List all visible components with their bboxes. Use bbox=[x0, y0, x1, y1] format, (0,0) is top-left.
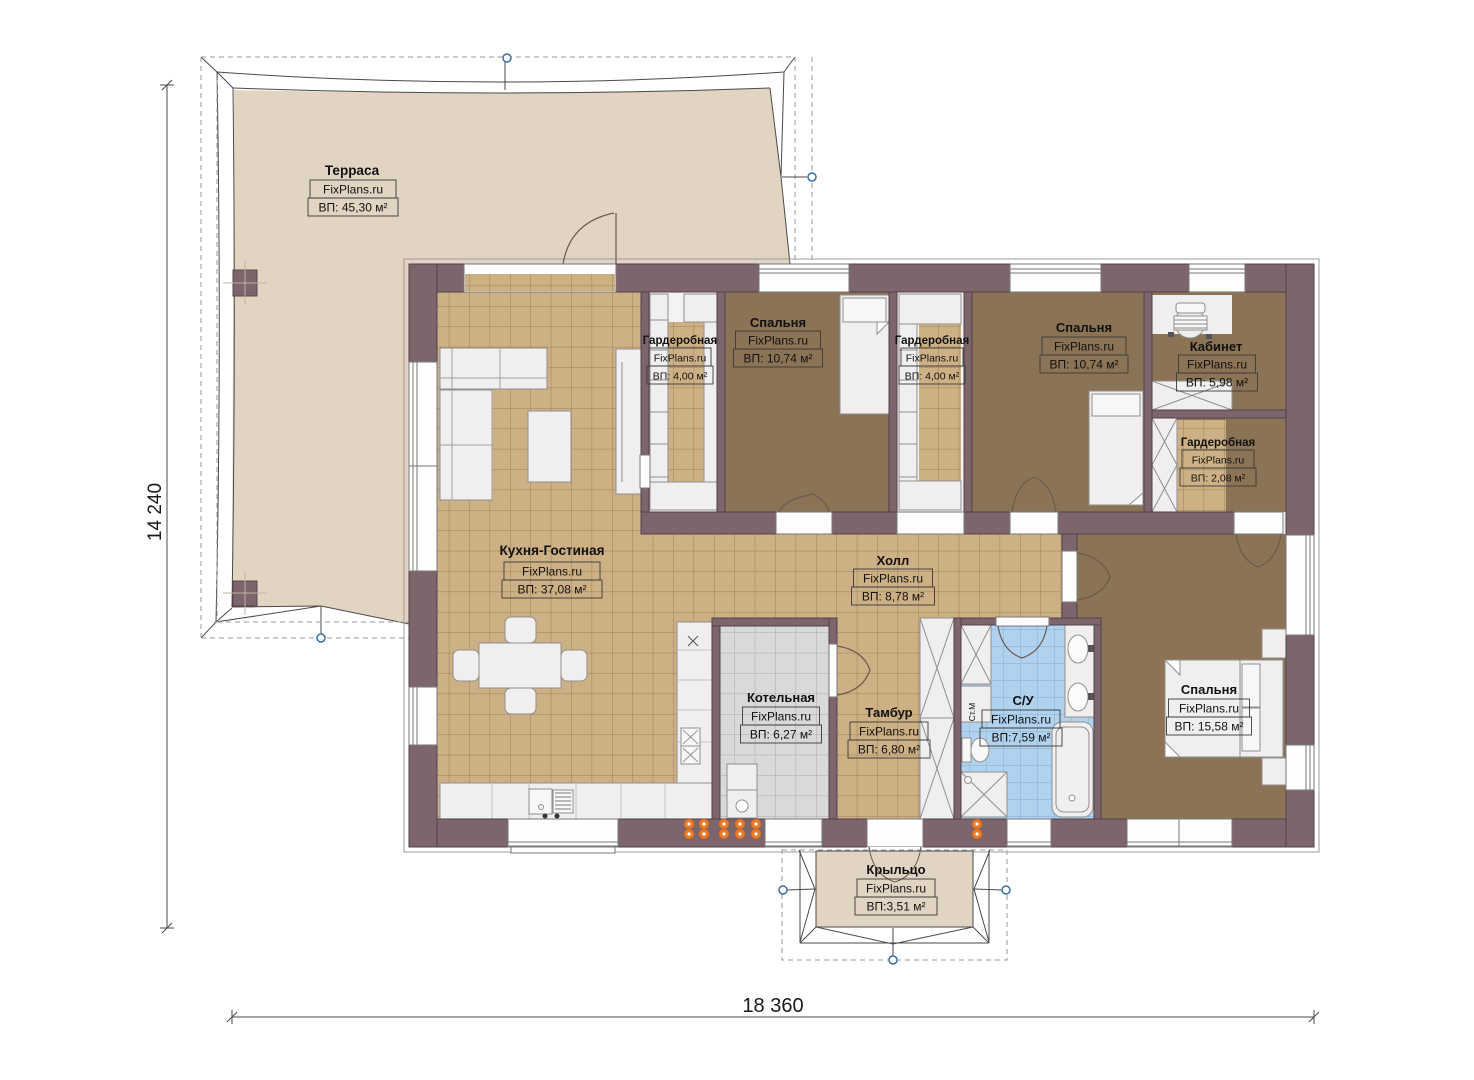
svg-text:ВП: 37,08 м²: ВП: 37,08 м² bbox=[518, 583, 587, 597]
svg-text:FixPlans.ru: FixPlans.ru bbox=[906, 353, 959, 365]
svg-text:Тамбур: Тамбур bbox=[865, 705, 912, 720]
svg-text:FixPlans.ru: FixPlans.ru bbox=[859, 725, 919, 739]
svg-text:ВП: 8,78 м²: ВП: 8,78 м² bbox=[862, 590, 924, 604]
svg-text:Кабинет: Кабинет bbox=[1190, 339, 1243, 354]
svg-text:ВП: 6,27 м²: ВП: 6,27 м² bbox=[750, 728, 812, 742]
svg-text:FixPlans.ru: FixPlans.ru bbox=[751, 710, 811, 724]
svg-text:FixPlans.ru: FixPlans.ru bbox=[1187, 358, 1247, 372]
svg-text:ВП: 4,00 м²: ВП: 4,00 м² bbox=[653, 371, 708, 383]
svg-text:Спальня: Спальня bbox=[1181, 682, 1237, 697]
svg-text:FixPlans.ru: FixPlans.ru bbox=[1192, 455, 1245, 467]
svg-text:FixPlans.ru: FixPlans.ru bbox=[991, 713, 1051, 727]
svg-text:Терраса: Терраса bbox=[325, 163, 380, 178]
svg-text:ВП:7,59 м²: ВП:7,59 м² bbox=[992, 731, 1051, 745]
svg-text:Холл: Холл bbox=[877, 553, 910, 568]
svg-text:С/У: С/У bbox=[1012, 693, 1034, 708]
svg-text:18 360: 18 360 bbox=[742, 995, 803, 1017]
svg-text:ВП: 15,58 м²: ВП: 15,58 м² bbox=[1175, 720, 1244, 734]
svg-text:FixPlans.ru: FixPlans.ru bbox=[1179, 702, 1239, 716]
svg-text:FixPlans.ru: FixPlans.ru bbox=[863, 572, 923, 586]
svg-text:FixPlans.ru: FixPlans.ru bbox=[866, 882, 926, 896]
svg-text:FixPlans.ru: FixPlans.ru bbox=[748, 334, 808, 348]
svg-text:Гардеробная: Гардеробная bbox=[643, 335, 717, 347]
svg-text:ВП:3,51 м²: ВП:3,51 м² bbox=[867, 900, 926, 914]
svg-text:Гардеробная: Гардеробная bbox=[1181, 437, 1255, 449]
svg-text:ВП: 6,80 м²: ВП: 6,80 м² bbox=[858, 743, 920, 757]
svg-text:14 240: 14 240 bbox=[145, 483, 166, 541]
svg-text:ВП: 10,74 м²: ВП: 10,74 м² bbox=[744, 352, 813, 366]
svg-text:Спальня: Спальня bbox=[750, 315, 806, 330]
svg-text:FixPlans.ru: FixPlans.ru bbox=[654, 353, 707, 365]
svg-text:ВП: 5,98 м²: ВП: 5,98 м² bbox=[1186, 376, 1248, 390]
svg-text:FixPlans.ru: FixPlans.ru bbox=[1054, 340, 1114, 354]
svg-text:Ст.М: Ст.М bbox=[967, 703, 977, 722]
svg-text:Гардеробная: Гардеробная bbox=[895, 335, 969, 347]
svg-text:FixPlans.ru: FixPlans.ru bbox=[522, 565, 582, 579]
svg-text:ВП: 4,00 м²: ВП: 4,00 м² bbox=[905, 371, 960, 383]
svg-text:ВП: 2,08 м²: ВП: 2,08 м² bbox=[1191, 473, 1246, 485]
svg-text:Крыльцо: Крыльцо bbox=[866, 862, 925, 877]
svg-text:Спальня: Спальня bbox=[1056, 320, 1112, 335]
svg-text:ВП: 45,30 м²: ВП: 45,30 м² bbox=[319, 201, 388, 215]
svg-text:Кухня-Гостиная: Кухня-Гостиная bbox=[500, 543, 605, 558]
svg-text:Котельная: Котельная bbox=[747, 690, 815, 705]
svg-text:FixPlans.ru: FixPlans.ru bbox=[323, 183, 383, 197]
svg-text:ВП: 10,74 м²: ВП: 10,74 м² bbox=[1050, 358, 1119, 372]
